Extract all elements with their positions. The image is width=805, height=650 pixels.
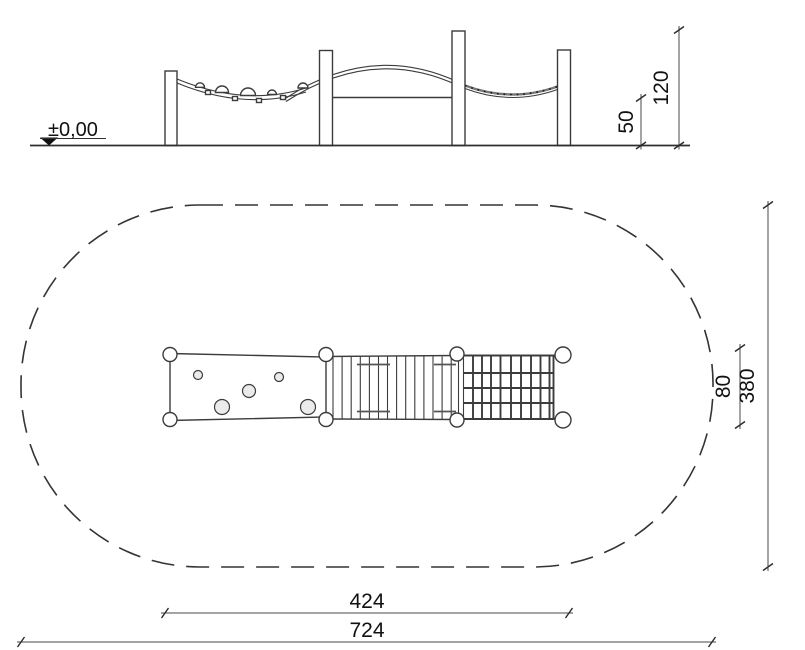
plan-post — [555, 347, 571, 363]
plan-post — [450, 347, 464, 361]
plan-knob — [215, 400, 230, 415]
plan-segment-net-grid — [457, 356, 563, 420]
plan-post — [319, 413, 333, 427]
datum-label: ±0,00 — [48, 119, 98, 141]
dim-label-80: 80 — [712, 375, 735, 398]
knob-bump — [196, 83, 205, 88]
plan-post — [450, 413, 464, 427]
cleat — [281, 96, 286, 100]
technical-drawing-canvas: ±0,00 50 120 — [0, 0, 805, 650]
plan-knob — [243, 385, 256, 398]
dimension-bar-height: 50 — [615, 94, 646, 150]
post-1 — [165, 71, 177, 146]
bridge-rail-marks — [357, 365, 456, 412]
dim-label-424: 424 — [349, 590, 384, 613]
datum-level-marker: ±0,00 — [40, 119, 106, 146]
plan-knob — [275, 373, 284, 382]
post-3 — [452, 31, 465, 146]
plan-post — [319, 348, 333, 362]
knob-bump — [298, 83, 308, 88]
plan-knob — [194, 371, 203, 380]
net-grid-lines — [457, 356, 563, 420]
dim-label-120: 120 — [650, 70, 673, 105]
safety-zone-boundary — [21, 205, 713, 567]
cleat — [257, 99, 262, 103]
post-2 — [320, 51, 333, 146]
dimension-zone-width: 380 — [736, 201, 773, 571]
plan-segment-climbing-plate — [170, 354, 326, 421]
plan-segment-rung-bridge — [326, 356, 457, 420]
dimension-zone-length: 724 — [17, 619, 716, 647]
knob-bump — [268, 90, 277, 95]
dimension-equipment-length: 424 — [161, 590, 573, 618]
sagging-rope — [465, 86, 558, 98]
plan-post — [163, 413, 177, 427]
dimension-total-height: 120 — [650, 26, 684, 150]
post-4 — [558, 50, 571, 146]
cleat — [206, 91, 211, 95]
cleat — [233, 97, 238, 101]
bridge-rungs — [333, 357, 451, 420]
plan-view: 80 380 424 724 — [17, 201, 773, 647]
plan-post — [555, 412, 571, 428]
dim-label-50: 50 — [615, 110, 638, 133]
knob-bump — [216, 86, 229, 92]
drawing-page: ±0,00 50 120 — [0, 0, 805, 650]
dim-label-724: 724 — [349, 619, 384, 642]
elevation-view: ±0,00 50 120 — [30, 26, 690, 150]
arched-beam — [286, 65, 458, 101]
plan-post — [163, 348, 177, 362]
sagging-balance-beam — [177, 79, 306, 103]
knob-bump — [241, 88, 256, 96]
plan-knob — [301, 400, 316, 415]
dim-label-380: 380 — [736, 368, 759, 403]
